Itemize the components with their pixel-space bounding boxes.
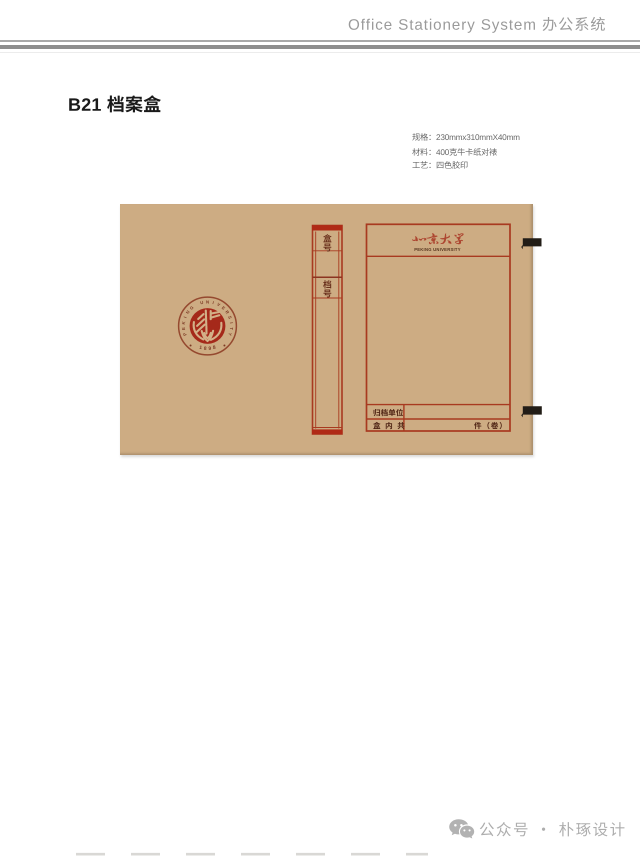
svg-text:N: N	[206, 299, 209, 304]
svg-text:U: U	[200, 300, 204, 306]
svg-text:P: P	[182, 332, 188, 337]
svg-text:N: N	[185, 309, 191, 314]
svg-text:I: I	[212, 300, 214, 305]
svg-text:I: I	[229, 322, 234, 324]
svg-text:I: I	[182, 316, 187, 319]
svg-text:K: K	[181, 320, 186, 325]
svg-text:8: 8	[204, 346, 207, 352]
svg-text:8: 8	[213, 345, 217, 351]
svg-text:T: T	[229, 327, 234, 331]
svg-text:9: 9	[208, 346, 211, 352]
svg-text:E: E	[181, 327, 186, 331]
svg-text:V: V	[216, 302, 221, 308]
svg-text:S: S	[227, 315, 233, 320]
svg-text:Y: Y	[227, 332, 233, 337]
svg-text:E: E	[221, 305, 227, 311]
svg-text:R: R	[224, 309, 230, 315]
svg-text:G: G	[189, 304, 195, 310]
svg-text:1: 1	[199, 345, 203, 351]
